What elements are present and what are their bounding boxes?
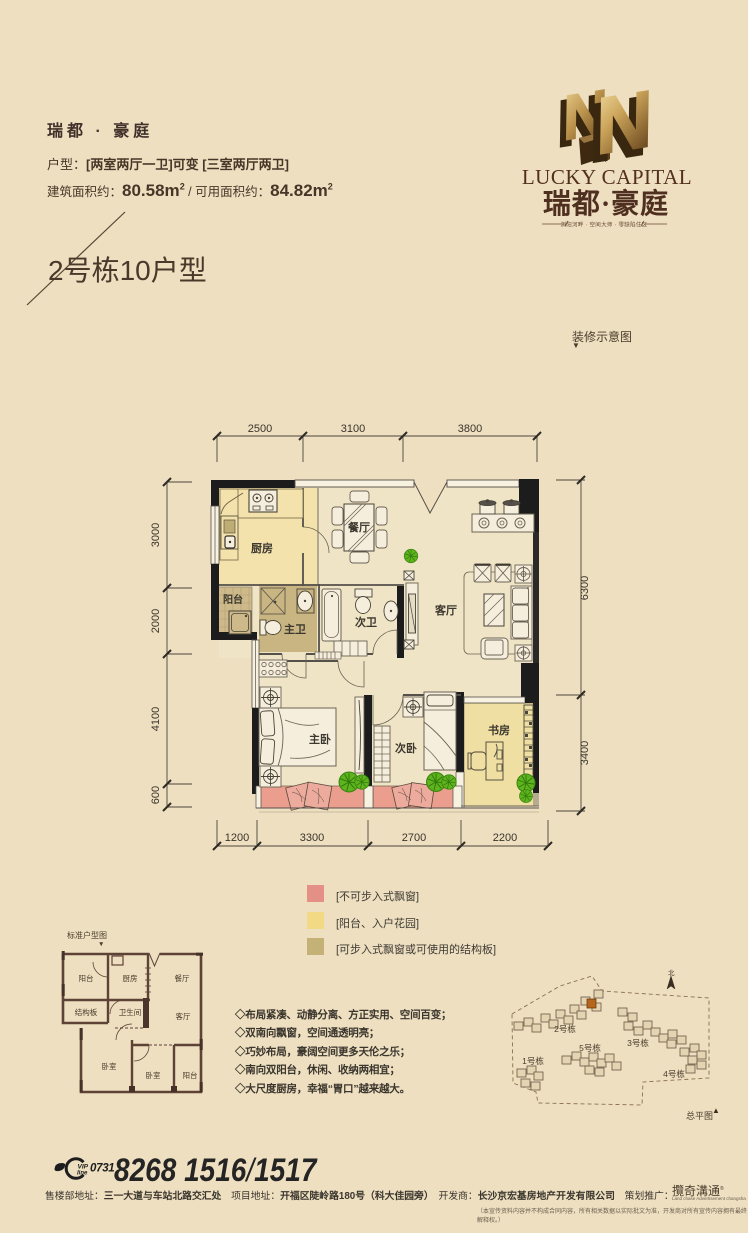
svg-text:5号栋: 5号栋: [579, 1043, 601, 1053]
svg-text:0731: 0731: [90, 1163, 114, 1175]
svg-text:▲: ▲: [712, 1106, 720, 1115]
svg-text:3400: 3400: [579, 741, 591, 765]
svg-text:2号栋: 2号栋: [554, 1024, 576, 1034]
svg-text:标准户型图: 标准户型图: [67, 930, 107, 940]
svg-text:北: 北: [668, 969, 675, 977]
svg-text:厨房: 厨房: [123, 973, 138, 983]
svg-text:1号栋: 1号栋: [522, 1056, 544, 1066]
svg-text:主卧: 主卧: [309, 732, 331, 746]
svg-text:阳台: 阳台: [183, 1070, 198, 1080]
svg-text:6300: 6300: [579, 576, 591, 600]
svg-text:瑞都·豪庭: 瑞都·豪庭: [543, 187, 669, 220]
svg-text:600: 600: [150, 786, 162, 804]
svg-text:餐厅: 餐厅: [347, 520, 370, 534]
svg-text:▼: ▼: [98, 941, 104, 948]
svg-text:2200: 2200: [493, 832, 517, 844]
svg-text:2000: 2000: [150, 609, 162, 633]
svg-text:line: line: [77, 1171, 88, 1177]
svg-text:4100: 4100: [150, 707, 162, 731]
svg-text:3800: 3800: [458, 423, 482, 435]
svg-text:3300: 3300: [300, 832, 324, 844]
svg-text:浏阳河畔 · 空间大师 · 零缺陷住区: 浏阳河畔 · 空间大师 · 零缺陷住区: [561, 221, 648, 229]
svg-text:3000: 3000: [150, 523, 162, 547]
svg-text:LUCKY CAPITAL: LUCKY CAPITAL: [522, 165, 692, 189]
svg-text:客厅: 客厅: [434, 603, 457, 617]
svg-text:餐厅: 餐厅: [175, 974, 190, 983]
svg-text:卧室: 卧室: [146, 1070, 161, 1080]
svg-text:3号栋: 3号栋: [627, 1038, 649, 1048]
svg-text:3100: 3100: [341, 423, 365, 435]
svg-text:总平图: 总平图: [686, 1110, 713, 1121]
svg-text:N: N: [596, 80, 653, 171]
svg-text:主卫: 主卫: [284, 622, 306, 636]
svg-text:2700: 2700: [402, 832, 426, 844]
svg-text:4号栋: 4号栋: [663, 1069, 685, 1079]
svg-text:次卫: 次卫: [355, 615, 377, 629]
svg-text:2500: 2500: [248, 423, 272, 435]
svg-text:卫生间: 卫生间: [119, 1007, 142, 1017]
svg-text:次卧: 次卧: [395, 741, 417, 755]
svg-text:阳台: 阳台: [79, 973, 94, 983]
svg-text:结构板: 结构板: [75, 1007, 98, 1017]
svg-text:卧室: 卧室: [102, 1061, 117, 1071]
svg-text:客厅: 客厅: [176, 1011, 191, 1021]
svg-text:厨房: 厨房: [251, 541, 273, 555]
svg-text:阳台: 阳台: [223, 593, 243, 606]
svg-text:书房: 书房: [488, 723, 510, 737]
svg-text:1200: 1200: [225, 832, 249, 844]
svg-text:VIP: VIP: [78, 1164, 89, 1171]
